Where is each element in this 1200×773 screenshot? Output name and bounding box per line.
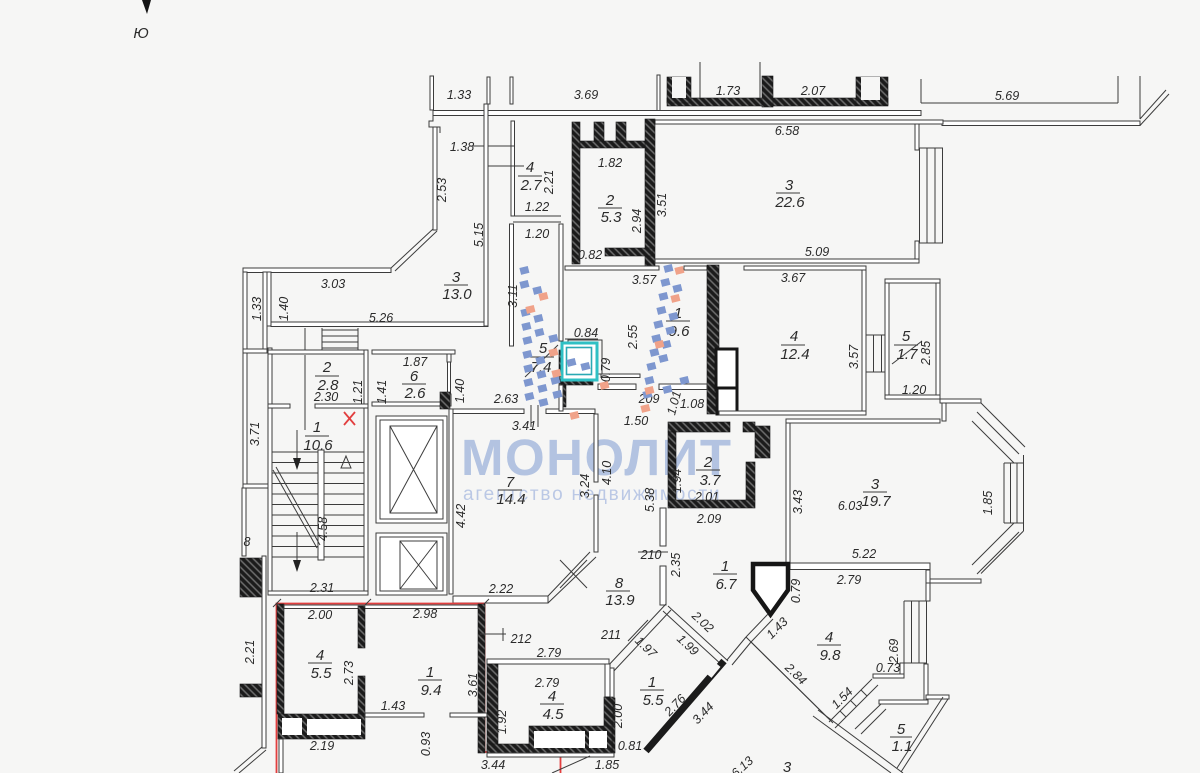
svg-text:1.50: 1.50 [624,414,648,428]
svg-text:5: 5 [902,328,911,345]
svg-text:1.38: 1.38 [450,140,474,154]
svg-text:9.8: 9.8 [820,647,842,664]
svg-text:2.09: 2.09 [696,512,721,526]
svg-text:2.85: 2.85 [919,341,933,366]
svg-text:0.82: 0.82 [578,248,602,262]
svg-text:2: 2 [322,359,332,376]
svg-text:3.61: 3.61 [466,673,480,697]
svg-text:3: 3 [783,759,792,773]
svg-text:6.03: 6.03 [838,499,862,513]
svg-text:5.5: 5.5 [643,692,665,709]
svg-text:0.73: 0.73 [876,661,900,675]
svg-text:0.79: 0.79 [599,358,613,382]
svg-text:2.94: 2.94 [630,209,644,234]
svg-text:3.43: 3.43 [791,490,805,514]
svg-text:2.55: 2.55 [626,325,640,350]
svg-text:5.09: 5.09 [805,245,829,259]
svg-text:1: 1 [721,558,729,575]
svg-text:3: 3 [785,177,794,194]
svg-text:2.01: 2.01 [694,490,719,504]
svg-text:1: 1 [313,419,321,436]
svg-text:3.57: 3.57 [632,273,657,287]
svg-text:2.35: 2.35 [669,553,683,578]
svg-text:2.73: 2.73 [342,661,356,686]
svg-text:12.4: 12.4 [780,346,809,363]
svg-text:5.38: 5.38 [643,488,657,512]
svg-text:4: 4 [790,328,798,345]
svg-text:2.98: 2.98 [412,607,437,621]
svg-text:2.21: 2.21 [542,170,556,195]
svg-text:4: 4 [548,688,556,705]
svg-text:1.43: 1.43 [381,699,405,713]
svg-text:210: 210 [640,548,662,562]
svg-text:6.58: 6.58 [775,124,799,138]
svg-text:2: 2 [703,454,713,471]
svg-text:2.07: 2.07 [800,84,826,98]
svg-text:0.79: 0.79 [789,579,803,603]
svg-text:1.92: 1.92 [495,710,509,734]
svg-text:3.24: 3.24 [578,474,592,498]
svg-text:4.5: 4.5 [543,706,565,723]
svg-text:4: 4 [316,647,324,664]
svg-text:1.85: 1.85 [595,758,619,772]
svg-text:13.9: 13.9 [605,592,635,609]
svg-text:2.7: 2.7 [520,177,543,194]
svg-text:5.69: 5.69 [995,89,1019,103]
svg-text:2.53: 2.53 [435,178,449,203]
svg-text:3.51: 3.51 [655,193,669,217]
svg-text:6: 6 [410,368,419,385]
svg-text:1.21: 1.21 [351,380,365,404]
svg-text:8: 8 [615,575,624,592]
svg-text:1.85: 1.85 [981,491,995,515]
svg-text:1: 1 [426,664,434,681]
svg-text:1.20: 1.20 [525,227,549,241]
svg-text:1.20: 1.20 [902,383,926,397]
svg-text:2.19: 2.19 [309,739,334,753]
svg-text:5.3: 5.3 [601,209,623,226]
svg-text:19.7: 19.7 [861,493,891,510]
svg-text:1: 1 [648,674,656,691]
svg-text:2.6: 2.6 [404,385,427,402]
svg-text:2.22: 2.22 [488,582,513,596]
svg-text:3.69: 3.69 [574,88,598,102]
svg-text:2: 2 [605,192,615,209]
svg-text:3.57: 3.57 [847,344,861,369]
svg-text:1.94: 1.94 [670,469,684,493]
svg-text:22.6: 22.6 [774,194,805,211]
svg-text:5.22: 5.22 [852,547,876,561]
svg-text:Ю: Ю [133,25,148,42]
svg-text:212: 212 [510,632,532,646]
svg-text:3.71: 3.71 [248,422,262,446]
svg-text:5: 5 [897,721,906,738]
svg-text:2.00: 2.00 [307,608,332,622]
svg-text:9.4: 9.4 [421,682,442,699]
svg-text:4.42: 4.42 [454,504,468,528]
svg-text:8: 8 [244,535,251,549]
svg-text:0.93: 0.93 [419,732,433,756]
svg-text:0.84: 0.84 [574,326,598,340]
svg-text:5.5: 5.5 [311,665,333,682]
svg-text:3.11: 3.11 [506,284,520,307]
svg-text:1.40: 1.40 [277,297,291,321]
svg-text:1.41: 1.41 [375,380,389,404]
svg-text:3.7: 3.7 [700,472,722,489]
svg-text:7: 7 [506,474,515,491]
svg-text:1.1: 1.1 [892,738,913,755]
svg-text:1.33: 1.33 [447,88,471,102]
svg-text:0.81: 0.81 [618,739,642,753]
svg-text:1.7: 1.7 [897,346,919,363]
svg-text:3.44: 3.44 [481,758,505,772]
svg-text:5.26: 5.26 [369,311,393,325]
svg-text:1.33: 1.33 [250,297,264,321]
svg-text:1.08: 1.08 [680,397,704,411]
svg-text:1.40: 1.40 [453,379,467,403]
svg-text:1.22: 1.22 [525,200,549,214]
svg-text:4: 4 [825,629,833,646]
svg-text:3: 3 [871,476,880,493]
svg-text:2.79: 2.79 [836,573,861,587]
svg-text:4: 4 [526,159,534,176]
svg-text:3: 3 [452,269,461,286]
svg-text:14.4: 14.4 [496,491,525,508]
svg-text:1.82: 1.82 [598,156,622,170]
svg-text:2.63: 2.63 [493,392,518,406]
svg-text:13.0: 13.0 [442,286,472,303]
svg-text:4.58: 4.58 [316,517,330,541]
svg-text:2.31: 2.31 [309,581,334,595]
svg-text:2.21: 2.21 [243,640,257,665]
svg-text:5: 5 [539,340,548,357]
svg-text:1.73: 1.73 [716,84,740,98]
svg-text:6.7: 6.7 [716,576,738,593]
svg-text:1.87: 1.87 [403,355,428,369]
svg-text:211: 211 [600,628,621,642]
svg-text:3.67: 3.67 [781,271,806,285]
svg-text:2.30: 2.30 [313,390,338,404]
svg-text:2.79: 2.79 [536,646,561,660]
svg-text:4.10: 4.10 [600,461,614,485]
svg-text:3.41: 3.41 [512,419,536,433]
svg-text:3.03: 3.03 [321,277,345,291]
